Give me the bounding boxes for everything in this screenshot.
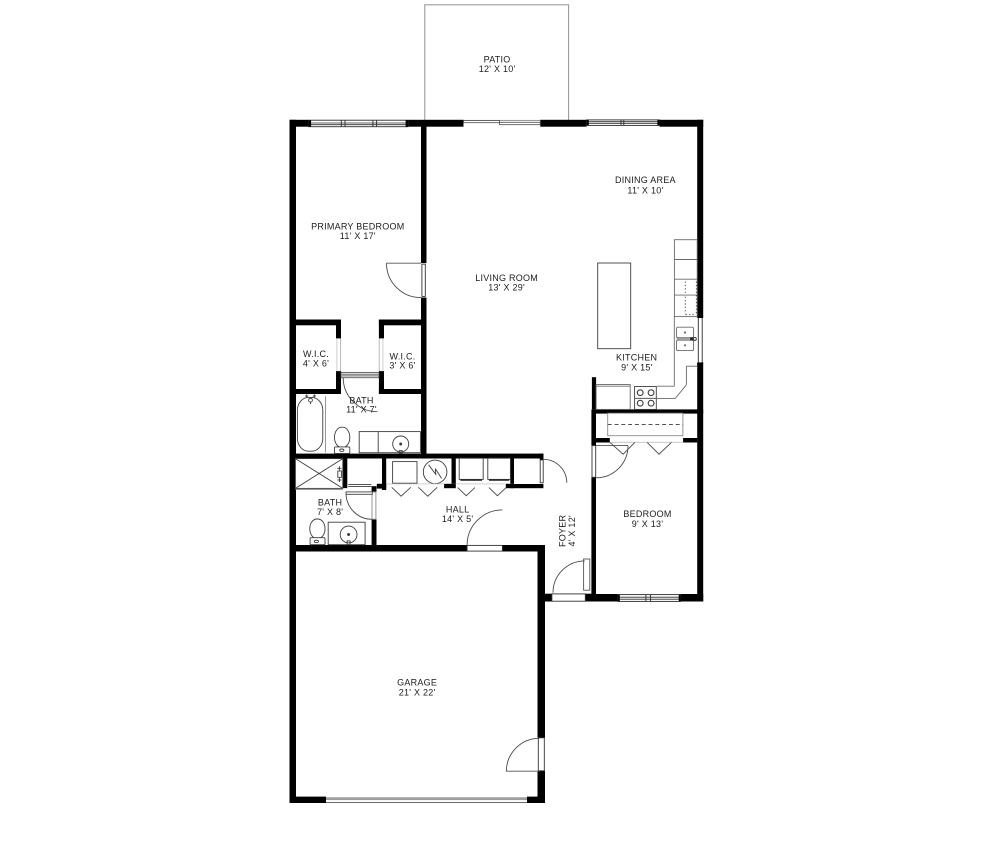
svg-text:FOYER: FOYER [558,514,568,547]
svg-text:11' X 17': 11' X 17' [340,231,376,241]
svg-text:BATH: BATH [318,498,342,508]
svg-text:3' X 6': 3' X 6' [389,361,415,371]
svg-text:12' X 10': 12' X 10' [479,64,516,74]
svg-text:9' X 13': 9' X 13' [632,519,663,529]
svg-text:11' X 7': 11' X 7' [346,405,377,415]
svg-text:KITCHEN: KITCHEN [616,353,657,363]
svg-text:4' X 6': 4' X 6' [303,359,329,369]
svg-text:4' X 12': 4' X 12' [567,515,577,546]
svg-text:GARAGE: GARAGE [397,678,437,688]
svg-text:7' X 8': 7' X 8' [317,507,343,517]
svg-text:W.I.C.: W.I.C. [303,349,329,359]
svg-text:DINING AREA: DINING AREA [615,175,676,185]
svg-text:9' X 15': 9' X 15' [621,363,652,373]
svg-text:13' X 29': 13' X 29' [488,283,525,293]
svg-text:BEDROOM: BEDROOM [623,509,671,519]
svg-text:HALL: HALL [446,505,470,515]
svg-text:11' X 10': 11' X 10' [627,186,663,196]
svg-text:14' X 5': 14' X 5' [442,514,473,524]
svg-text:PATIO: PATIO [484,54,511,64]
svg-text:21' X 22': 21' X 22' [399,688,436,698]
svg-text:PRIMARY BEDROOM: PRIMARY BEDROOM [311,221,404,231]
